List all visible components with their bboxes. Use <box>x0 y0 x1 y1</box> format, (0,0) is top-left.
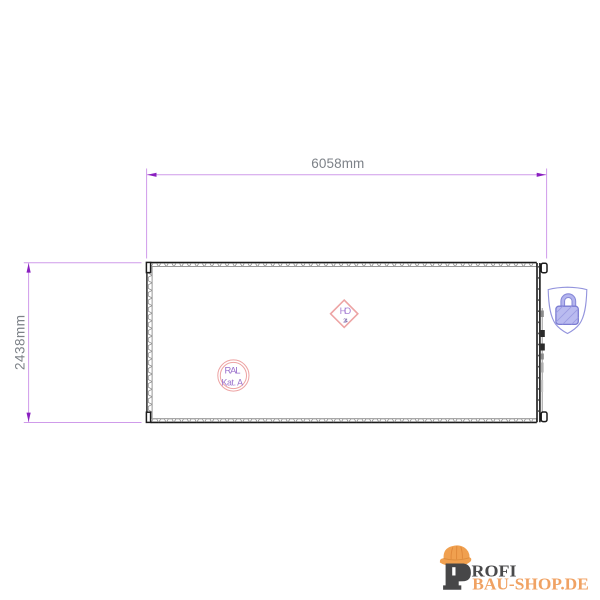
svg-text:2438mm: 2438mm <box>13 315 28 370</box>
svg-text:RAL: RAL <box>225 364 241 375</box>
svg-text:HO: HO <box>340 305 352 316</box>
svg-text:24: 24 <box>343 318 348 324</box>
svg-text:Kat. A: Kat. A <box>222 378 244 388</box>
svg-text:6058mm: 6058mm <box>311 156 364 171</box>
svg-text:BAU-SHOP.DE: BAU-SHOP.DE <box>472 575 589 594</box>
